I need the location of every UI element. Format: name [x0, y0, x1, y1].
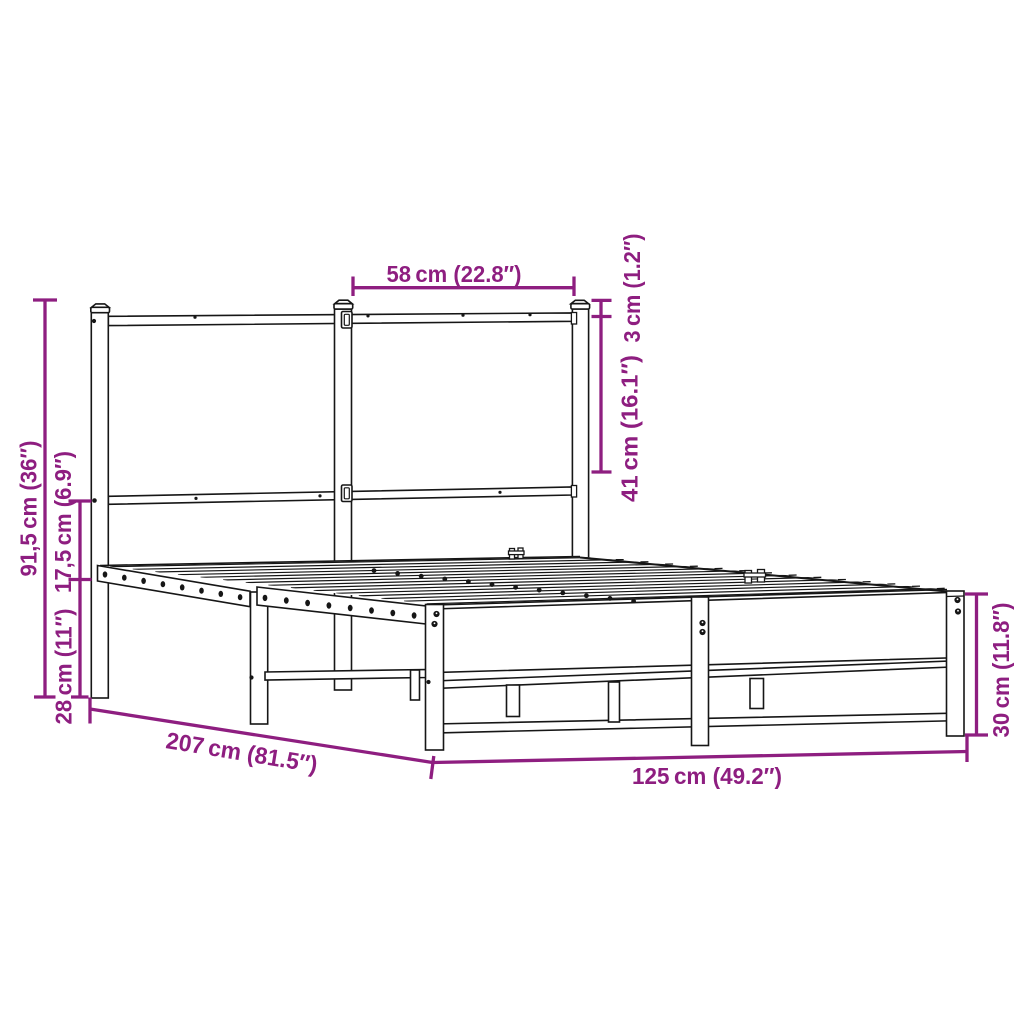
svg-text:3 cm (1.2″): 3 cm (1.2″): [619, 234, 645, 343]
svg-text:17,5 cm (6.9″): 17,5 cm (6.9″): [50, 451, 76, 593]
svg-text:28 cm (11″): 28 cm (11″): [51, 609, 77, 725]
svg-text:207 cm (81.5″): 207 cm (81.5″): [164, 727, 319, 777]
svg-text:125 cm (49.2″): 125 cm (49.2″): [632, 763, 782, 789]
svg-text:41 cm (16.1″): 41 cm (16.1″): [617, 355, 643, 502]
svg-text:91,5 cm (36″): 91,5 cm (36″): [16, 441, 42, 577]
svg-text:30 cm (11.8″): 30 cm (11.8″): [988, 603, 1014, 738]
svg-text:58 cm (22.8″): 58 cm (22.8″): [387, 261, 522, 287]
